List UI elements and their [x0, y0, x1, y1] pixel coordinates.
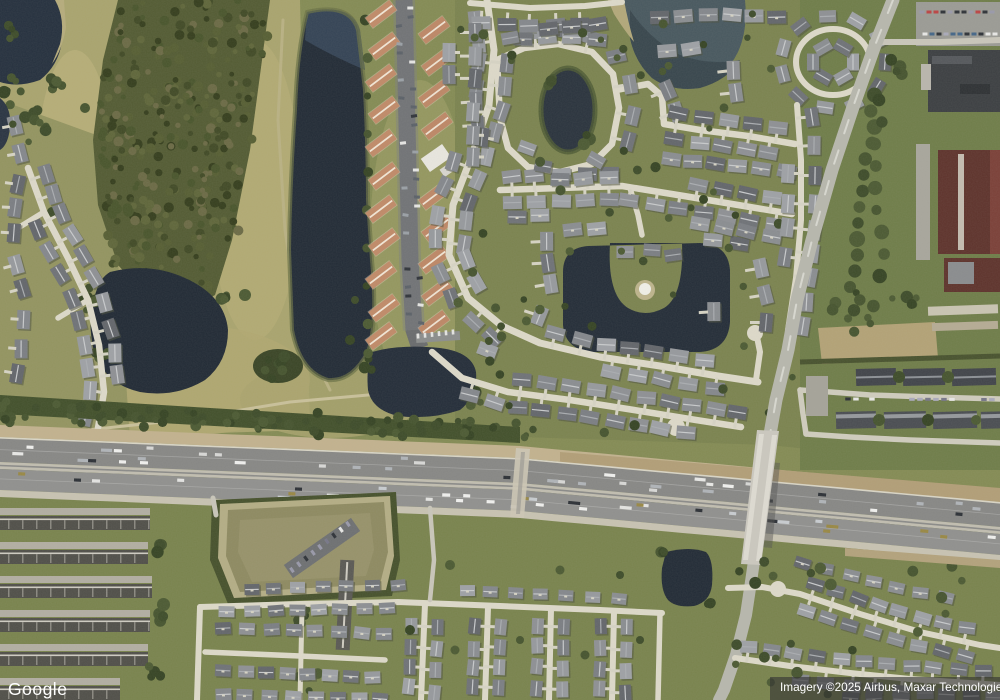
svg-text:Google: Google	[8, 679, 67, 699]
svg-text:Imagery ©2025 Airbus, Maxar Te: Imagery ©2025 Airbus, Maxar Technologies	[780, 680, 1000, 694]
